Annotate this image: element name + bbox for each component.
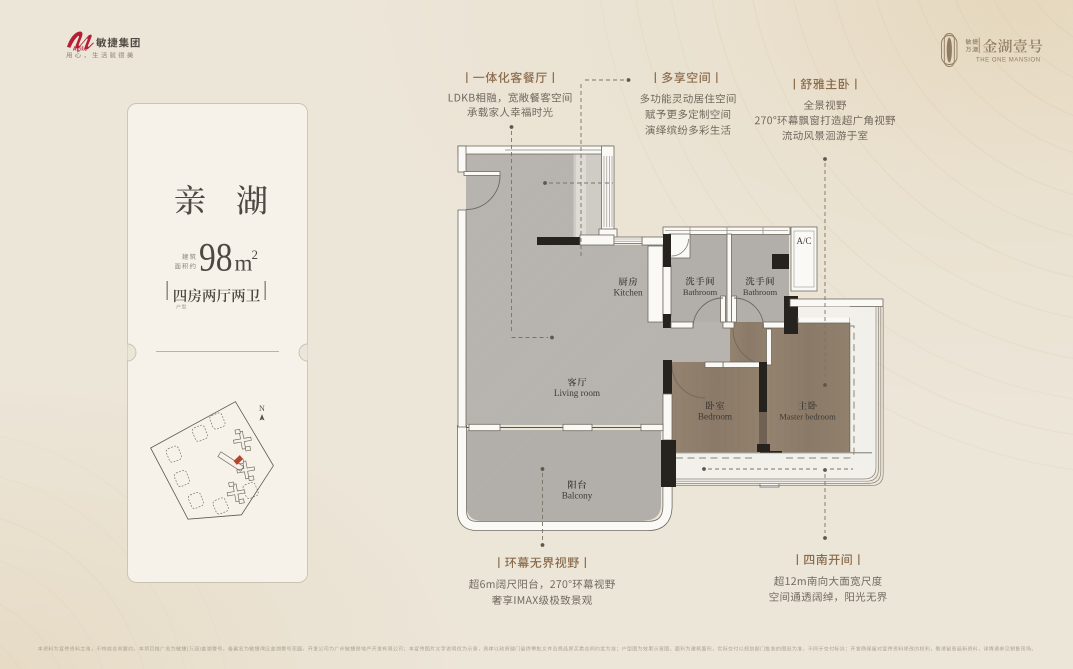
- svg-text:2: 2: [252, 247, 259, 262]
- svg-text:Bathroom: Bathroom: [683, 287, 718, 297]
- svg-text:A/C: A/C: [796, 236, 811, 246]
- svg-text:N: N: [259, 404, 265, 413]
- svg-text:Bathroom: Bathroom: [743, 287, 778, 297]
- svg-text:THE ONE MANSION: THE ONE MANSION: [976, 58, 1041, 64]
- svg-text:Balcony: Balcony: [562, 491, 593, 501]
- svg-text:Kitchen: Kitchen: [613, 288, 642, 298]
- svg-text:Bedroom: Bedroom: [698, 412, 732, 422]
- svg-text:98: 98: [199, 235, 233, 280]
- svg-text:m: m: [235, 251, 253, 276]
- svg-text:Master bedroom: Master bedroom: [779, 412, 836, 422]
- svg-text:Living room: Living room: [554, 388, 600, 398]
